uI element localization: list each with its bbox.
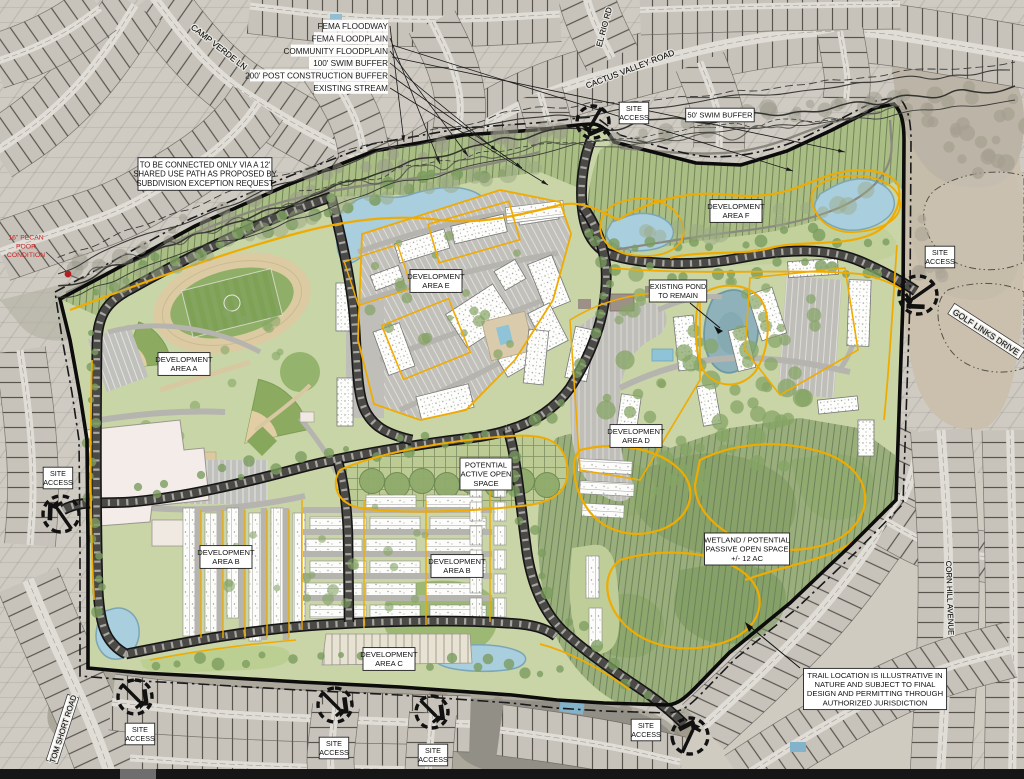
svg-text:WETLAND / POTENTIAL: WETLAND / POTENTIAL	[704, 535, 790, 544]
svg-text:EXISTING STREAM: EXISTING STREAM	[313, 84, 388, 93]
svg-text:FEMA FLOODWAY: FEMA FLOODWAY	[317, 22, 388, 31]
svg-text:SPACE: SPACE	[473, 479, 498, 488]
svg-text:SITE: SITE	[932, 248, 948, 257]
svg-text:DEVELOPMENT: DEVELOPMENT	[607, 427, 665, 436]
svg-text:SUBDIVISION EXCEPTION REQUEST: SUBDIVISION EXCEPTION REQUEST	[136, 179, 274, 188]
svg-text:ACCESS: ACCESS	[619, 113, 649, 122]
svg-text:DEVELOPMENT: DEVELOPMENT	[155, 355, 213, 364]
svg-text:TO REMAIN: TO REMAIN	[658, 291, 698, 300]
svg-text:ACCESS: ACCESS	[43, 478, 73, 487]
svg-text:AREA A: AREA A	[170, 364, 198, 373]
svg-text:DEVELOPMENT: DEVELOPMENT	[407, 272, 465, 281]
svg-text:DEVELOPMENT: DEVELOPMENT	[707, 202, 765, 211]
svg-text:AREA D: AREA D	[622, 436, 650, 445]
svg-text:50' SWIM BUFFER: 50' SWIM BUFFER	[687, 111, 753, 120]
svg-text:AREA E: AREA E	[422, 281, 449, 290]
svg-text:DEVELOPMENT: DEVELOPMENT	[428, 557, 486, 566]
svg-text:ACCESS: ACCESS	[631, 730, 661, 739]
svg-text:SITE: SITE	[425, 746, 441, 755]
svg-text:PASSIVE OPEN SPACE: PASSIVE OPEN SPACE	[706, 545, 789, 554]
svg-text:POTENTIAL: POTENTIAL	[465, 460, 507, 469]
svg-text:AREA F: AREA F	[722, 211, 749, 220]
svg-text:FEMA FLOODPLAIN: FEMA FLOODPLAIN	[312, 34, 389, 43]
svg-text:ACTIVE OPEN: ACTIVE OPEN	[460, 470, 511, 479]
svg-text:AUTHORIZED JURISDICTION: AUTHORIZED JURISDICTION	[823, 698, 928, 707]
svg-text:SITE: SITE	[638, 721, 654, 730]
svg-text:AREA B: AREA B	[443, 566, 470, 575]
svg-text:DESIGN AND PERMITTING THROUGH: DESIGN AND PERMITTING THROUGH	[807, 689, 943, 698]
svg-text:AREA B: AREA B	[212, 557, 239, 566]
svg-text:CONDITION: CONDITION	[7, 252, 45, 259]
svg-text:EXISTING POND: EXISTING POND	[650, 282, 706, 291]
svg-text:SITE: SITE	[326, 739, 342, 748]
svg-text:DEVELOPMENT: DEVELOPMENT	[360, 650, 418, 659]
svg-text:AREA C: AREA C	[375, 659, 403, 668]
svg-text:ACCESS: ACCESS	[319, 748, 349, 757]
svg-text:ACCESS: ACCESS	[418, 755, 448, 764]
svg-text:ACCESS: ACCESS	[125, 734, 155, 743]
svg-text:16" PECAN: 16" PECAN	[8, 235, 43, 242]
svg-text:TRAIL LOCATION IS ILLUSTRATIVE: TRAIL LOCATION IS ILLUSTRATIVE IN	[807, 671, 942, 680]
svg-text:POOR: POOR	[16, 243, 36, 250]
svg-text:SITE: SITE	[132, 725, 148, 734]
svg-text:NATURE AND SUBJECT TO FINAL: NATURE AND SUBJECT TO FINAL	[815, 680, 936, 689]
svg-text:DEVELOPMENT: DEVELOPMENT	[197, 548, 255, 557]
svg-text:TO BE CONNECTED ONLY VIA A 12': TO BE CONNECTED ONLY VIA A 12'	[140, 160, 271, 169]
svg-text:100' SWIM BUFFER: 100' SWIM BUFFER	[313, 59, 388, 68]
svg-text:COMMUNITY FLOODPLAIN: COMMUNITY FLOODPLAIN	[284, 47, 389, 56]
svg-text:ACCESS: ACCESS	[925, 257, 955, 266]
svg-text:SHARED USE PATH AS PROPOSED BY: SHARED USE PATH AS PROPOSED BY	[133, 170, 277, 179]
svg-text:SITE: SITE	[50, 469, 66, 478]
svg-text:200' POST CONSTRUCTION BUFFER: 200' POST CONSTRUCTION BUFFER	[245, 72, 388, 81]
svg-text:+/- 12 AC: +/- 12 AC	[731, 554, 763, 563]
svg-text:SITE: SITE	[626, 104, 642, 113]
